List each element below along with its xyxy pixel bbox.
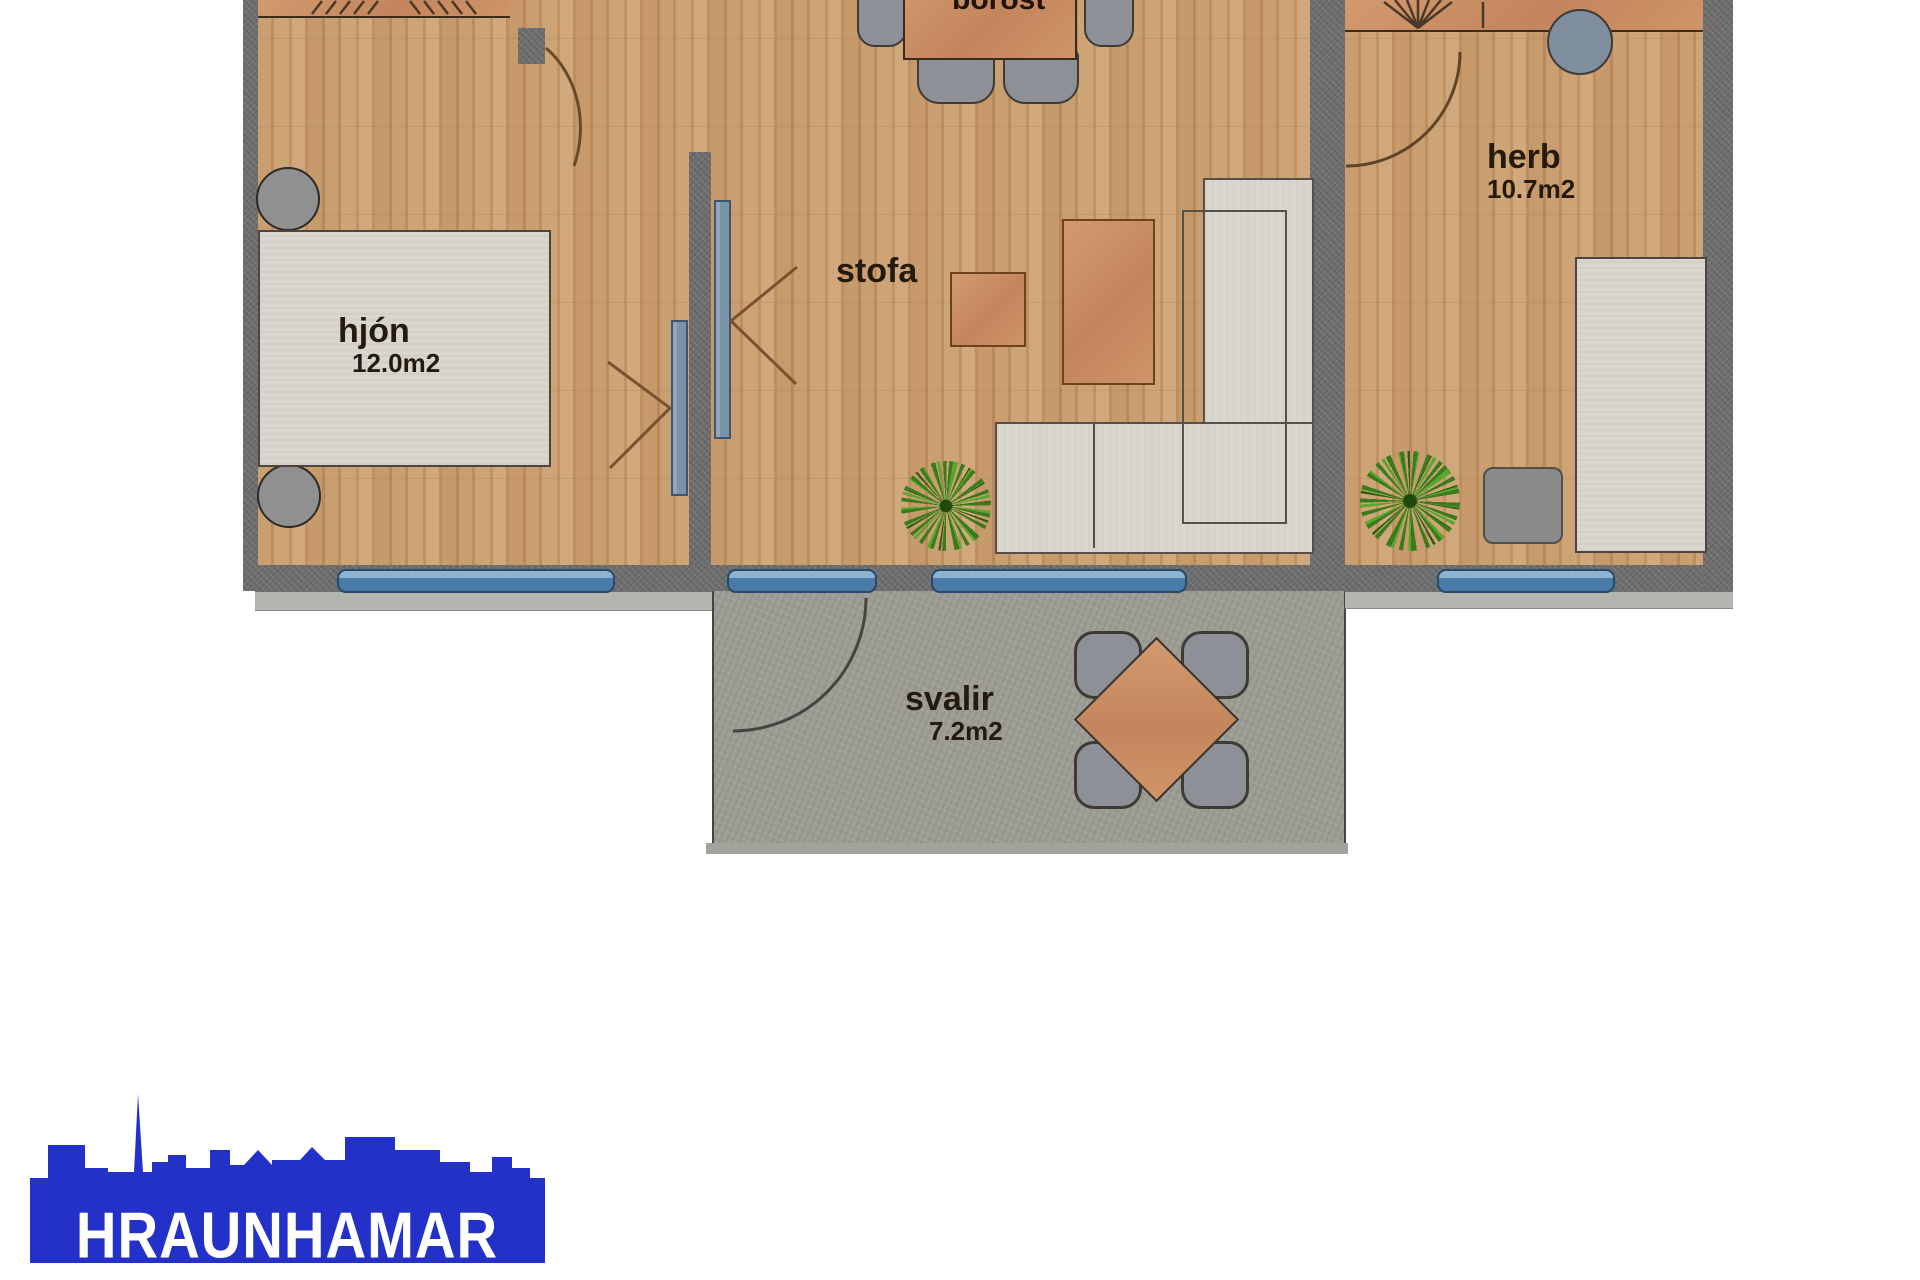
room-label-herb-name: herb — [1487, 140, 1575, 176]
room-label-stofa: stofa — [836, 254, 917, 290]
room-label-hjon: hjón 12.0m2 — [338, 314, 440, 377]
logo-hraunhamar: HRAUNHAMAR — [28, 1082, 548, 1272]
room-label-herb: herb 10.7m2 — [1487, 140, 1575, 203]
room-label-stofa-name: stofa — [836, 254, 917, 290]
fold-door-mark-left — [608, 362, 670, 468]
room-label-herb-area: 10.7m2 — [1487, 176, 1575, 203]
fold-door-mark-right — [731, 267, 797, 384]
wardrobe-hatch-marks — [312, 1, 476, 14]
room-label-balcony-area: 7.2m2 — [929, 718, 1003, 745]
room-label-dining: borðst — [952, 0, 1045, 16]
logo-text: HRAUNHAMAR — [40, 1198, 535, 1273]
door-arc-herb — [1346, 52, 1460, 166]
room-label-hjon-name: hjón — [338, 314, 440, 350]
desk-hatch-marks — [1384, 0, 1452, 28]
room-label-balcony-name: svalir — [905, 682, 1003, 718]
room-label-hjon-area: 12.0m2 — [352, 350, 440, 377]
room-label-balcony: svalir 7.2m2 — [905, 682, 1003, 745]
room-label-dining-name: borðst — [952, 0, 1045, 16]
floorplan-page: hjón 12.0m2 stofa borðst herb 10.7m2 sva… — [0, 0, 1920, 1280]
door-arc-balcony — [733, 598, 866, 731]
door-arc-hjon — [546, 48, 580, 166]
